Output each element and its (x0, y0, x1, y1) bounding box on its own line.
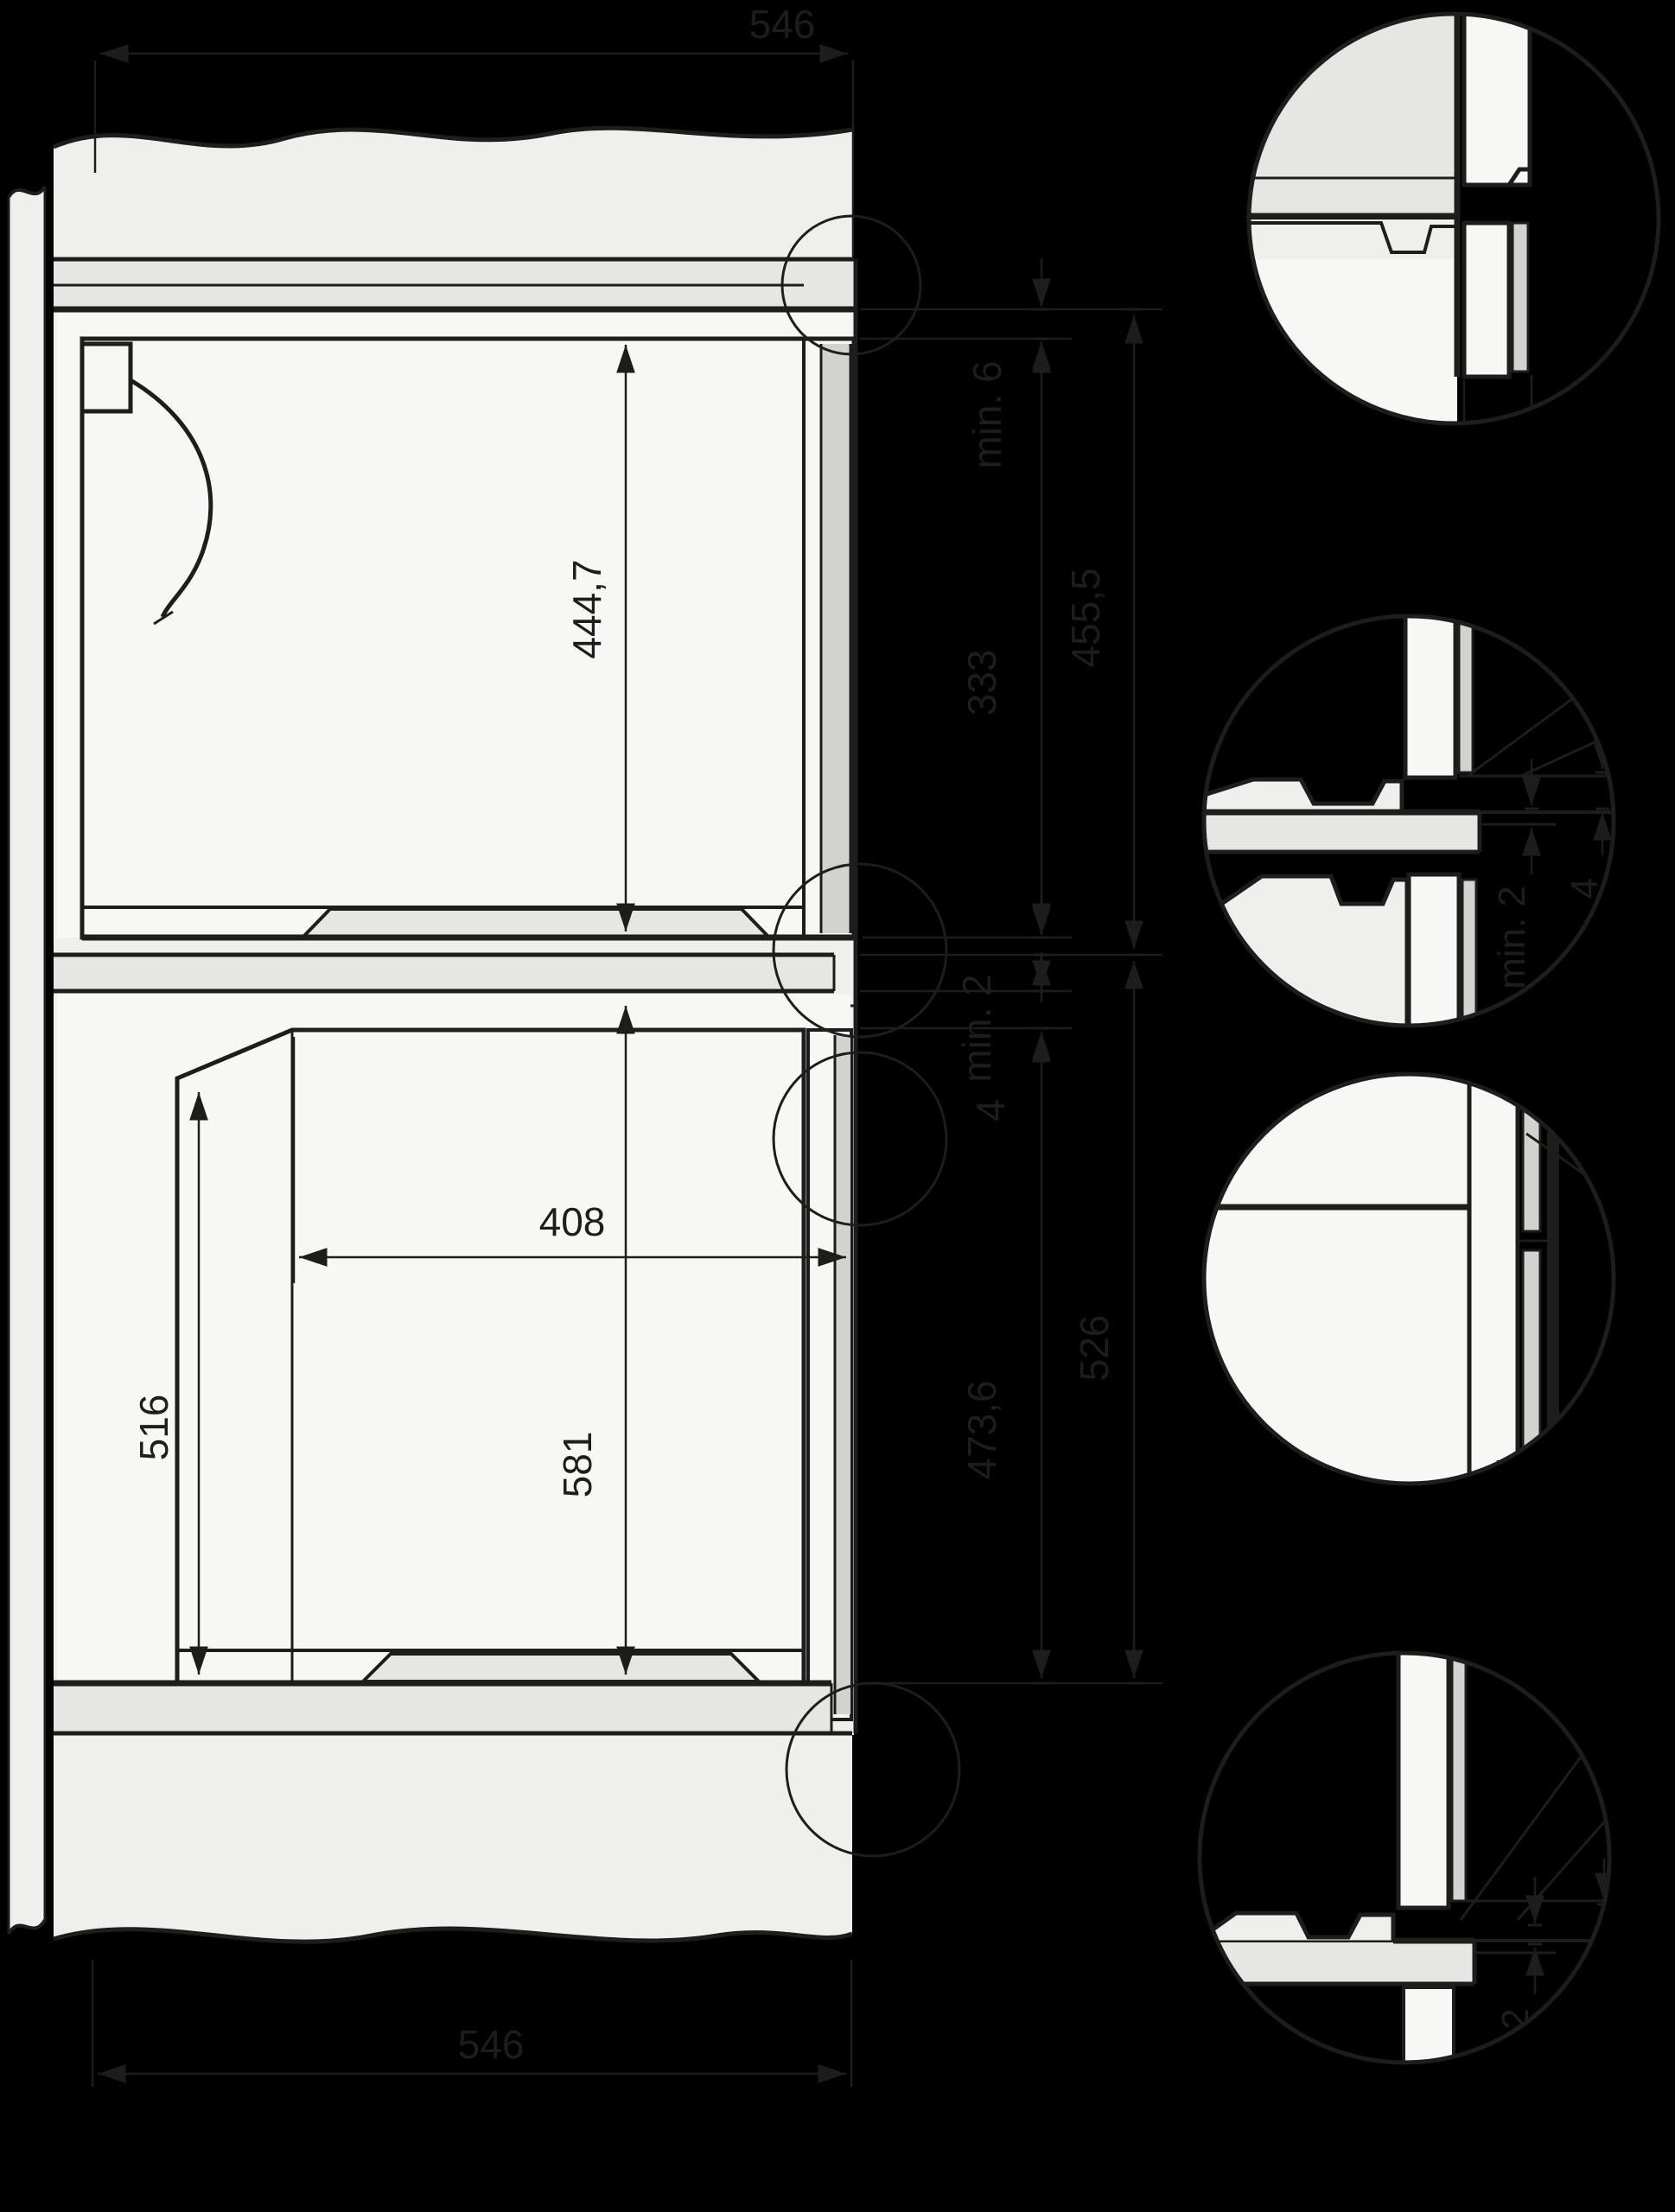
detail-circle-bottom: min. 2 4 (1200, 1653, 1668, 2112)
detail-circle-middle: min. 2 4 (1204, 616, 1668, 1028)
side-wall (9, 187, 45, 1934)
lower-appliance (177, 1030, 851, 1719)
dim-mid-step: 4 (968, 1099, 1013, 1122)
dim-upper-appliance-height: 444,7 (564, 559, 609, 658)
cabinet-bottom-break (54, 1735, 852, 1942)
upper-appliance-foot (303, 909, 769, 938)
lower-appliance-foot (363, 1654, 759, 1681)
upper-door-gray-strip (821, 344, 850, 933)
lower-door-gray-strip (835, 1035, 850, 1714)
dim-upper-top-gap: min. 6 (965, 360, 1009, 468)
detail-circle-top: 8 (1201, 0, 1659, 489)
detail-dim-bottom-gap: min. 2 (1494, 2008, 1537, 2112)
dim-upper-niche-height: 455,5 (1063, 568, 1108, 667)
miele-installation-diagram: 546 444,7 min. 6 333 455,5 min. 2 4 473,… (0, 0, 1675, 2212)
dim-lower-depth: 408 (539, 1199, 606, 1244)
dim-lower-appliance-height: 581 (555, 1432, 600, 1498)
detail-dim-top-gap: 8 (1487, 428, 1508, 470)
dim-lower-niche-height: 526 (1072, 1315, 1117, 1382)
dim-bottom-width: 546 (458, 2022, 525, 2067)
detail-dim-bottom-step: 4 (1565, 2005, 1608, 2025)
upper-appliance (82, 339, 854, 938)
bottom-shelf (54, 1683, 852, 1733)
installation-drawing-page: 546 444,7 min. 6 333 455,5 min. 2 4 473,… (0, 0, 1675, 2212)
dim-lower-rear-height: 516 (131, 1395, 176, 1461)
dim-lower-front-height: 473,6 (959, 1380, 1004, 1479)
mains-box (82, 344, 131, 411)
dim-mid-gap: min. 2 (954, 974, 999, 1082)
cabinet-top-break (54, 128, 852, 259)
main-cabinet-section (9, 128, 959, 1942)
detail-dim-door-angle: 22°/23,3° (1423, 1527, 1580, 1569)
detail-circle-angle: 22°/23,3° (1204, 1074, 1672, 1569)
dim-upper-rear-height: 333 (959, 650, 1004, 716)
detail-dim-mid-gap: min. 2 (1491, 886, 1533, 989)
dim-top-width: 546 (749, 2, 816, 47)
